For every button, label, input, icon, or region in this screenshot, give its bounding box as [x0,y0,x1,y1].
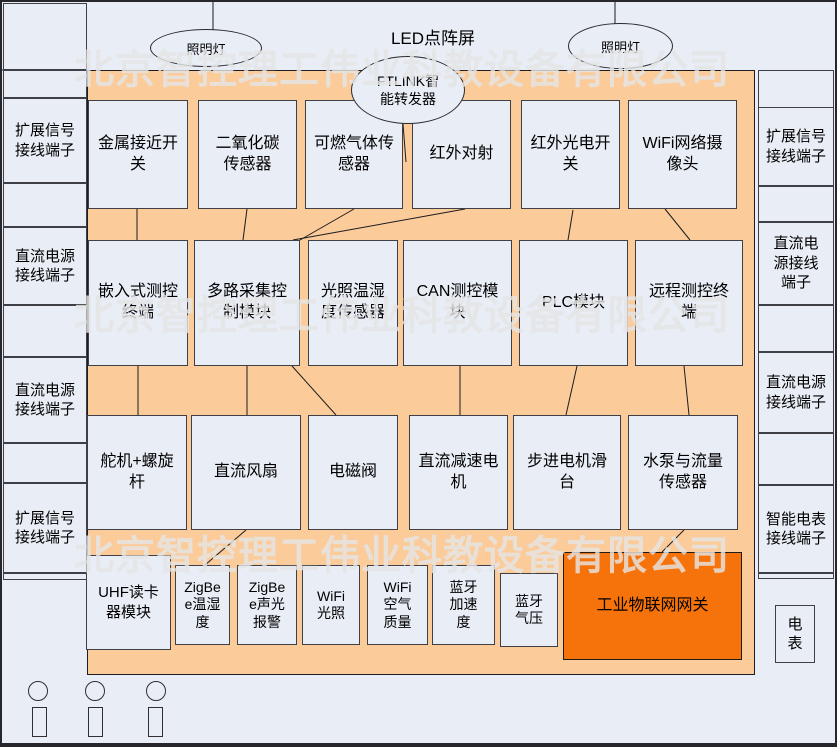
left-terminal-expand-signal-2: 扩展信号 接线端子 [3,483,87,573]
right-terminal-expand-signal: 扩展信号 接线端子 [758,107,834,186]
module-multi-channel-acquisition: 多路采集控 制模块 [194,240,300,366]
left-terminal-empty-top [3,3,87,70]
led-matrix-screen-label: LED点阵屏 [368,24,498,49]
module-co2-sensor: 二氧化碳 传感器 [198,100,297,209]
module-industrial-iot-gateway: 工业物联网网关 [563,552,742,660]
lamp-oval-right: 照明灯 [568,23,673,69]
iot-training-panel-diagram: LED点阵屏 照明灯 照明灯 FTLINK智 能转发器 扩展信号 接线端子 直流… [0,0,837,747]
right-terminal-empty-2 [758,186,834,222]
module-dc-gear-motor: 直流减速电 机 [409,415,508,530]
module-dc-fan: 直流风扇 [191,415,301,530]
module-stepper-motor-slide: 步进电机滑 台 [513,415,621,530]
foot-circle-3 [146,681,166,701]
module-infrared-photoelectric-switch: 红外光电开 关 [521,100,620,209]
foot-leg-3 [148,707,163,737]
foot-leg-2 [88,707,103,737]
right-terminal-empty-4 [758,433,834,485]
left-terminal-empty-3 [3,305,87,357]
foot-leg-1 [32,707,47,737]
module-zigbee-sound-light-alarm: ZigBe e声光 报警 [237,565,297,645]
module-pump-flow-sensor: 水泵与流量 传感器 [628,415,738,530]
module-zigbee-temp-humidity: ZigBe e温湿 度 [175,565,230,645]
module-light-temp-humidity-sensor: 光照温湿 度传感器 [308,240,398,366]
right-terminal-smart-meter: 智能电表 接线端子 [758,485,834,573]
right-terminal-empty-1 [758,70,834,109]
left-terminal-empty-4 [3,443,87,483]
module-metal-proximity-switch: 金属接近开 关 [88,100,188,209]
left-terminal-dc-power-1: 直流电源 接线端子 [3,227,87,305]
module-wifi-network-camera: WiFi网络摄 像头 [628,100,737,209]
module-remote-terminal: 远程测控终 端 [635,240,743,366]
right-terminal-empty-3 [758,305,834,352]
electric-meter-box: 电 表 [775,605,815,663]
module-servo-screw-rod: 舵机+螺旋 杆 [87,415,187,530]
foot-circle-1 [28,681,48,701]
left-terminal-expand-signal-1: 扩展信号 接线端子 [3,98,87,183]
right-terminal-dc-power-2: 直流电源 接线端子 [758,352,834,433]
left-terminal-empty-2 [3,183,87,227]
left-terminal-dc-power-2: 直流电源 接线端子 [3,357,87,443]
module-wifi-light: WiFi 光照 [302,565,360,645]
left-terminal-empty-1 [3,70,87,98]
left-terminal-empty-5 [3,573,87,580]
module-can-control: CAN测控模 块 [403,240,512,366]
module-wifi-air-quality: WiFi 空气 质量 [367,565,428,645]
foot-circle-2 [85,681,105,701]
module-bluetooth-pressure: 蓝牙 气压 [500,573,558,647]
module-bluetooth-accelerometer: 蓝牙 加速 度 [432,565,495,645]
module-uhf-reader: UHF读卡 器模块 [86,555,171,650]
right-terminal-dc-power-1: 直流电 源接线 端子 [758,222,834,305]
module-plc: PLC模块 [519,240,628,366]
module-embedded-terminal: 嵌入式测控 终端 [88,240,188,366]
ftlink-repeater-oval: FTLINK智 能转发器 [351,56,465,124]
lamp-oval-left: 照明灯 [150,29,262,67]
right-terminal-empty-5 [758,573,834,579]
module-solenoid-valve: 电磁阀 [308,415,398,530]
